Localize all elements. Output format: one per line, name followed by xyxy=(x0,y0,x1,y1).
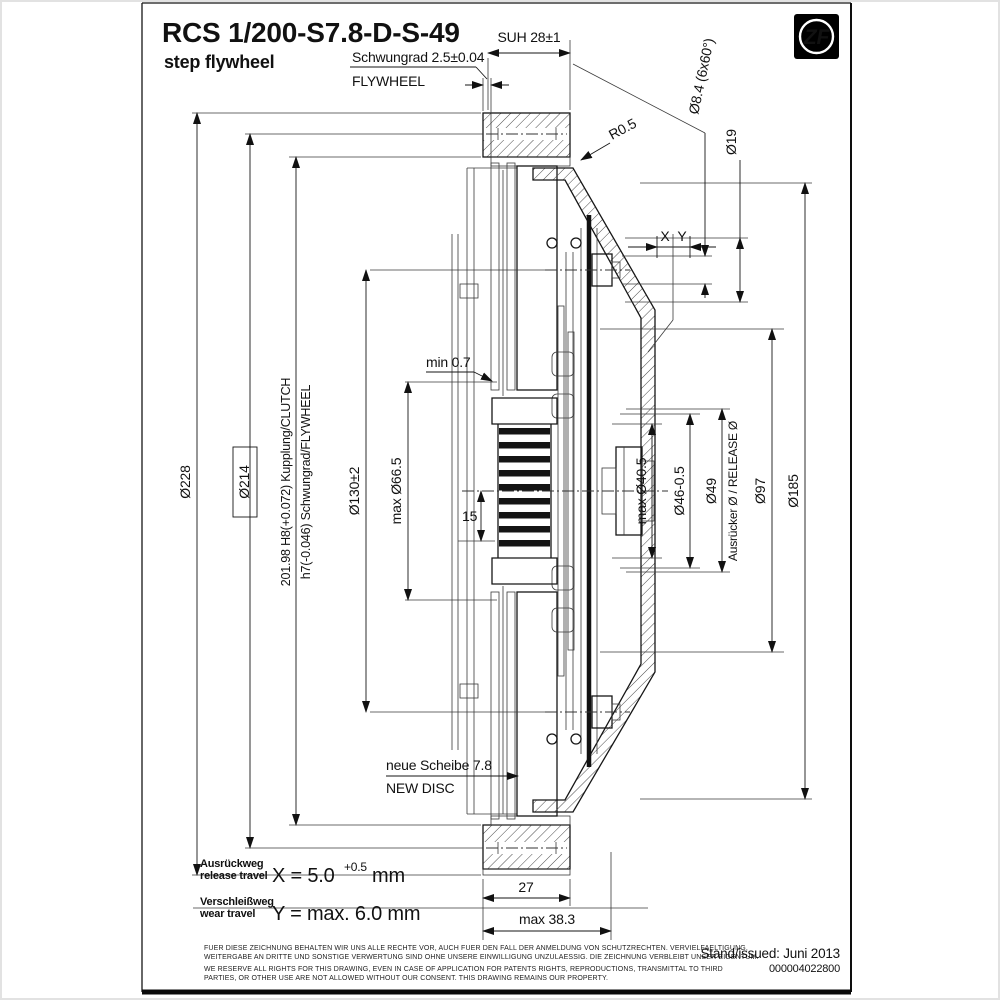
dim-label-y: Y xyxy=(677,228,687,244)
dimension-r05: R0.5 xyxy=(581,115,639,160)
dim-label-r05: R0.5 xyxy=(606,115,639,143)
issued-date: Stand/issued: Juni 2013 xyxy=(700,946,840,961)
legal-notice-de-line2: WEITERGABE AN DRITTE UND SONSTIGE VERWER… xyxy=(204,954,759,961)
dim-label-dia228: Ø228 xyxy=(177,465,193,499)
page-subtitle: step flywheel xyxy=(164,52,274,72)
document-number: 000004022800 xyxy=(769,963,840,975)
legal-notice: FUER DIESE ZEICHNUNG BEHALTEN WIR UNS AL… xyxy=(204,945,759,982)
dim-label-new-disc-en: NEW DISC xyxy=(386,780,454,796)
spline-teeth xyxy=(499,428,550,547)
pivot-rivet xyxy=(571,734,581,744)
dim-label-15: 15 xyxy=(462,508,478,524)
flywheel-bottom-section xyxy=(483,816,570,875)
drawing-sheet: RCS 1/200-S7.8-D-S-49 step flywheel ZF xyxy=(0,0,1000,1000)
dim-label-holes: Ø8.4 (6x60°) xyxy=(685,37,717,116)
page-title: RCS 1/200-S7.8-D-S-49 xyxy=(162,17,460,48)
legal-notice-de-line1: FUER DIESE ZEICHNUNG BEHALTEN WIR UNS AL… xyxy=(204,945,748,952)
dim-label-min07: min 0.7 xyxy=(426,354,471,370)
dim-label-dia185: Ø185 xyxy=(785,474,801,508)
release-travel-label-en: release travel xyxy=(200,870,268,882)
dim-label-suh: SUH 28±1 xyxy=(498,29,561,45)
dimension-dia97: Ø97 xyxy=(600,329,784,652)
flywheel-top-section xyxy=(483,113,570,166)
pivot-rivet xyxy=(547,238,557,248)
release-travel-unit: mm xyxy=(372,865,405,887)
pivot-rivet xyxy=(547,734,557,744)
dim-label-dia40: max Ø40.5 xyxy=(633,457,649,524)
wear-travel-value: Y = max. 6.0 mm xyxy=(272,903,420,925)
dim-label-fit-flywheel: h7(-0.046) Schwungrad/FLYWHEEL xyxy=(299,384,313,579)
dim-label-fit-clutch: 201.98 H8(+0.072) Kupplung/CLUTCH xyxy=(279,378,293,587)
wear-travel-label-de: Verschleißweg xyxy=(200,896,274,908)
zf-logo: ZF xyxy=(794,14,839,59)
travel-notes: Ausrückweg release travel X = 5.0 +0.5 m… xyxy=(199,858,420,925)
dim-label-dia66: max Ø66.5 xyxy=(388,457,404,524)
dim-label-dia214: Ø214 xyxy=(236,465,252,499)
legal-notice-en-line2: PARTIES, OR OTHER USE ARE NOT ALLOWED WI… xyxy=(204,975,608,982)
dim-label-383: max 38.3 xyxy=(519,911,575,927)
release-travel-value: X = 5.0 xyxy=(272,865,335,887)
dimension-suh: SUH 28±1 xyxy=(488,29,570,110)
release-travel-label-de: Ausrückweg xyxy=(200,858,263,870)
dim-label-new-disc-de: neue Scheibe 7.8 xyxy=(386,757,492,773)
dim-label-dia19: Ø19 xyxy=(723,129,739,155)
dimension-dia19: Ø19 xyxy=(625,129,748,302)
dim-label-flywheel-step-en: FLYWHEEL xyxy=(352,73,425,89)
dim-label-dia49: Ø49 xyxy=(703,478,719,504)
dim-label-flywheel-step-de: Schwungrad 2.5±0.04 xyxy=(352,49,485,65)
dim-label-dia130: Ø130±2 xyxy=(346,466,362,515)
dimension-15: 15 xyxy=(458,491,495,541)
wear-travel-label-en: wear travel xyxy=(199,908,255,920)
dim-label-release: Ausrücker Ø / RELEASE Ø xyxy=(726,421,740,561)
pivot-rivet xyxy=(571,238,581,248)
technical-drawing: RCS 1/200-S7.8-D-S-49 step flywheel ZF xyxy=(0,0,1000,1000)
legal-notice-en-line1: WE RESERVE ALL RIGHTS FOR THIS DRAWING, … xyxy=(204,966,723,973)
dim-label-dia97: Ø97 xyxy=(752,478,768,504)
release-travel-tolerance: +0.5 xyxy=(344,860,367,874)
zf-logo-text: ZF xyxy=(803,26,831,49)
dim-label-x: X xyxy=(660,228,670,244)
dimension-new-disc: neue Scheibe 7.8 NEW DISC xyxy=(386,757,518,796)
dim-label-dia46: Ø46-0.5 xyxy=(671,466,687,516)
dimension-fit-201: 201.98 H8(+0.072) Kupplung/CLUTCH h7(-0.… xyxy=(279,157,481,825)
dim-label-27: 27 xyxy=(518,879,534,895)
dimension-min07: min 0.7 xyxy=(426,354,492,381)
dimension-holes-84: Ø8.4 (6x60°) xyxy=(573,37,717,298)
